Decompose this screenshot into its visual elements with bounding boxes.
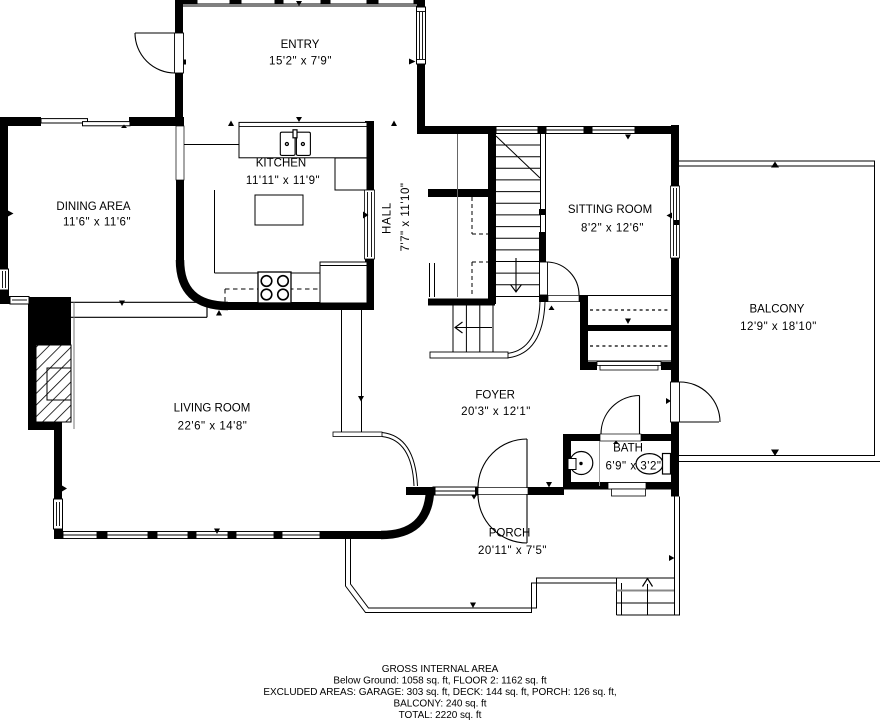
svg-text:BATH: BATH [613,443,643,455]
svg-text:BALCONY: BALCONY [750,304,805,316]
svg-text:BALCONY: 240 sq. ft: BALCONY: 240 sq. ft [394,699,487,710]
svg-text:6'9" x 3'2": 6'9" x 3'2" [606,461,662,473]
svg-text:HALL: HALL [382,202,394,234]
svg-text:15'2" x 7'9": 15'2" x 7'9" [269,55,332,67]
svg-text:20'3" x 12'1": 20'3" x 12'1" [461,406,531,418]
svg-text:SITTING ROOM: SITTING ROOM [568,204,652,216]
svg-text:GROSS INTERNAL AREA: GROSS INTERNAL AREA [382,664,499,675]
svg-text:DINING AREA: DINING AREA [56,201,130,213]
svg-text:Below Ground: 1058 sq. ft, FLO: Below Ground: 1058 sq. ft, FLOOR 2: 1162… [333,676,546,687]
svg-text:22'6" x 14'8": 22'6" x 14'8" [178,421,248,433]
svg-text:LIVING ROOM: LIVING ROOM [174,403,251,415]
svg-text:12'9" x 18'10": 12'9" x 18'10" [740,321,817,333]
svg-text:7'7" x 11'10": 7'7" x 11'10" [400,183,412,252]
svg-text:ENTRY: ENTRY [281,39,320,51]
svg-text:PORCH: PORCH [489,528,531,540]
svg-text:KITCHEN: KITCHEN [256,158,306,170]
svg-text:11'11" x 11'9": 11'11" x 11'9" [246,175,320,187]
svg-text:FOYER: FOYER [475,390,515,402]
svg-text:EXCLUDED AREAS: GARAGE: 303 sq: EXCLUDED AREAS: GARAGE: 303 sq. ft, DECK… [263,687,616,698]
svg-text:11'6" x 11'6": 11'6" x 11'6" [63,217,131,229]
svg-text:20'11" x 7'5": 20'11" x 7'5" [478,545,547,557]
svg-text:8'2" x 12'6": 8'2" x 12'6" [581,223,644,235]
